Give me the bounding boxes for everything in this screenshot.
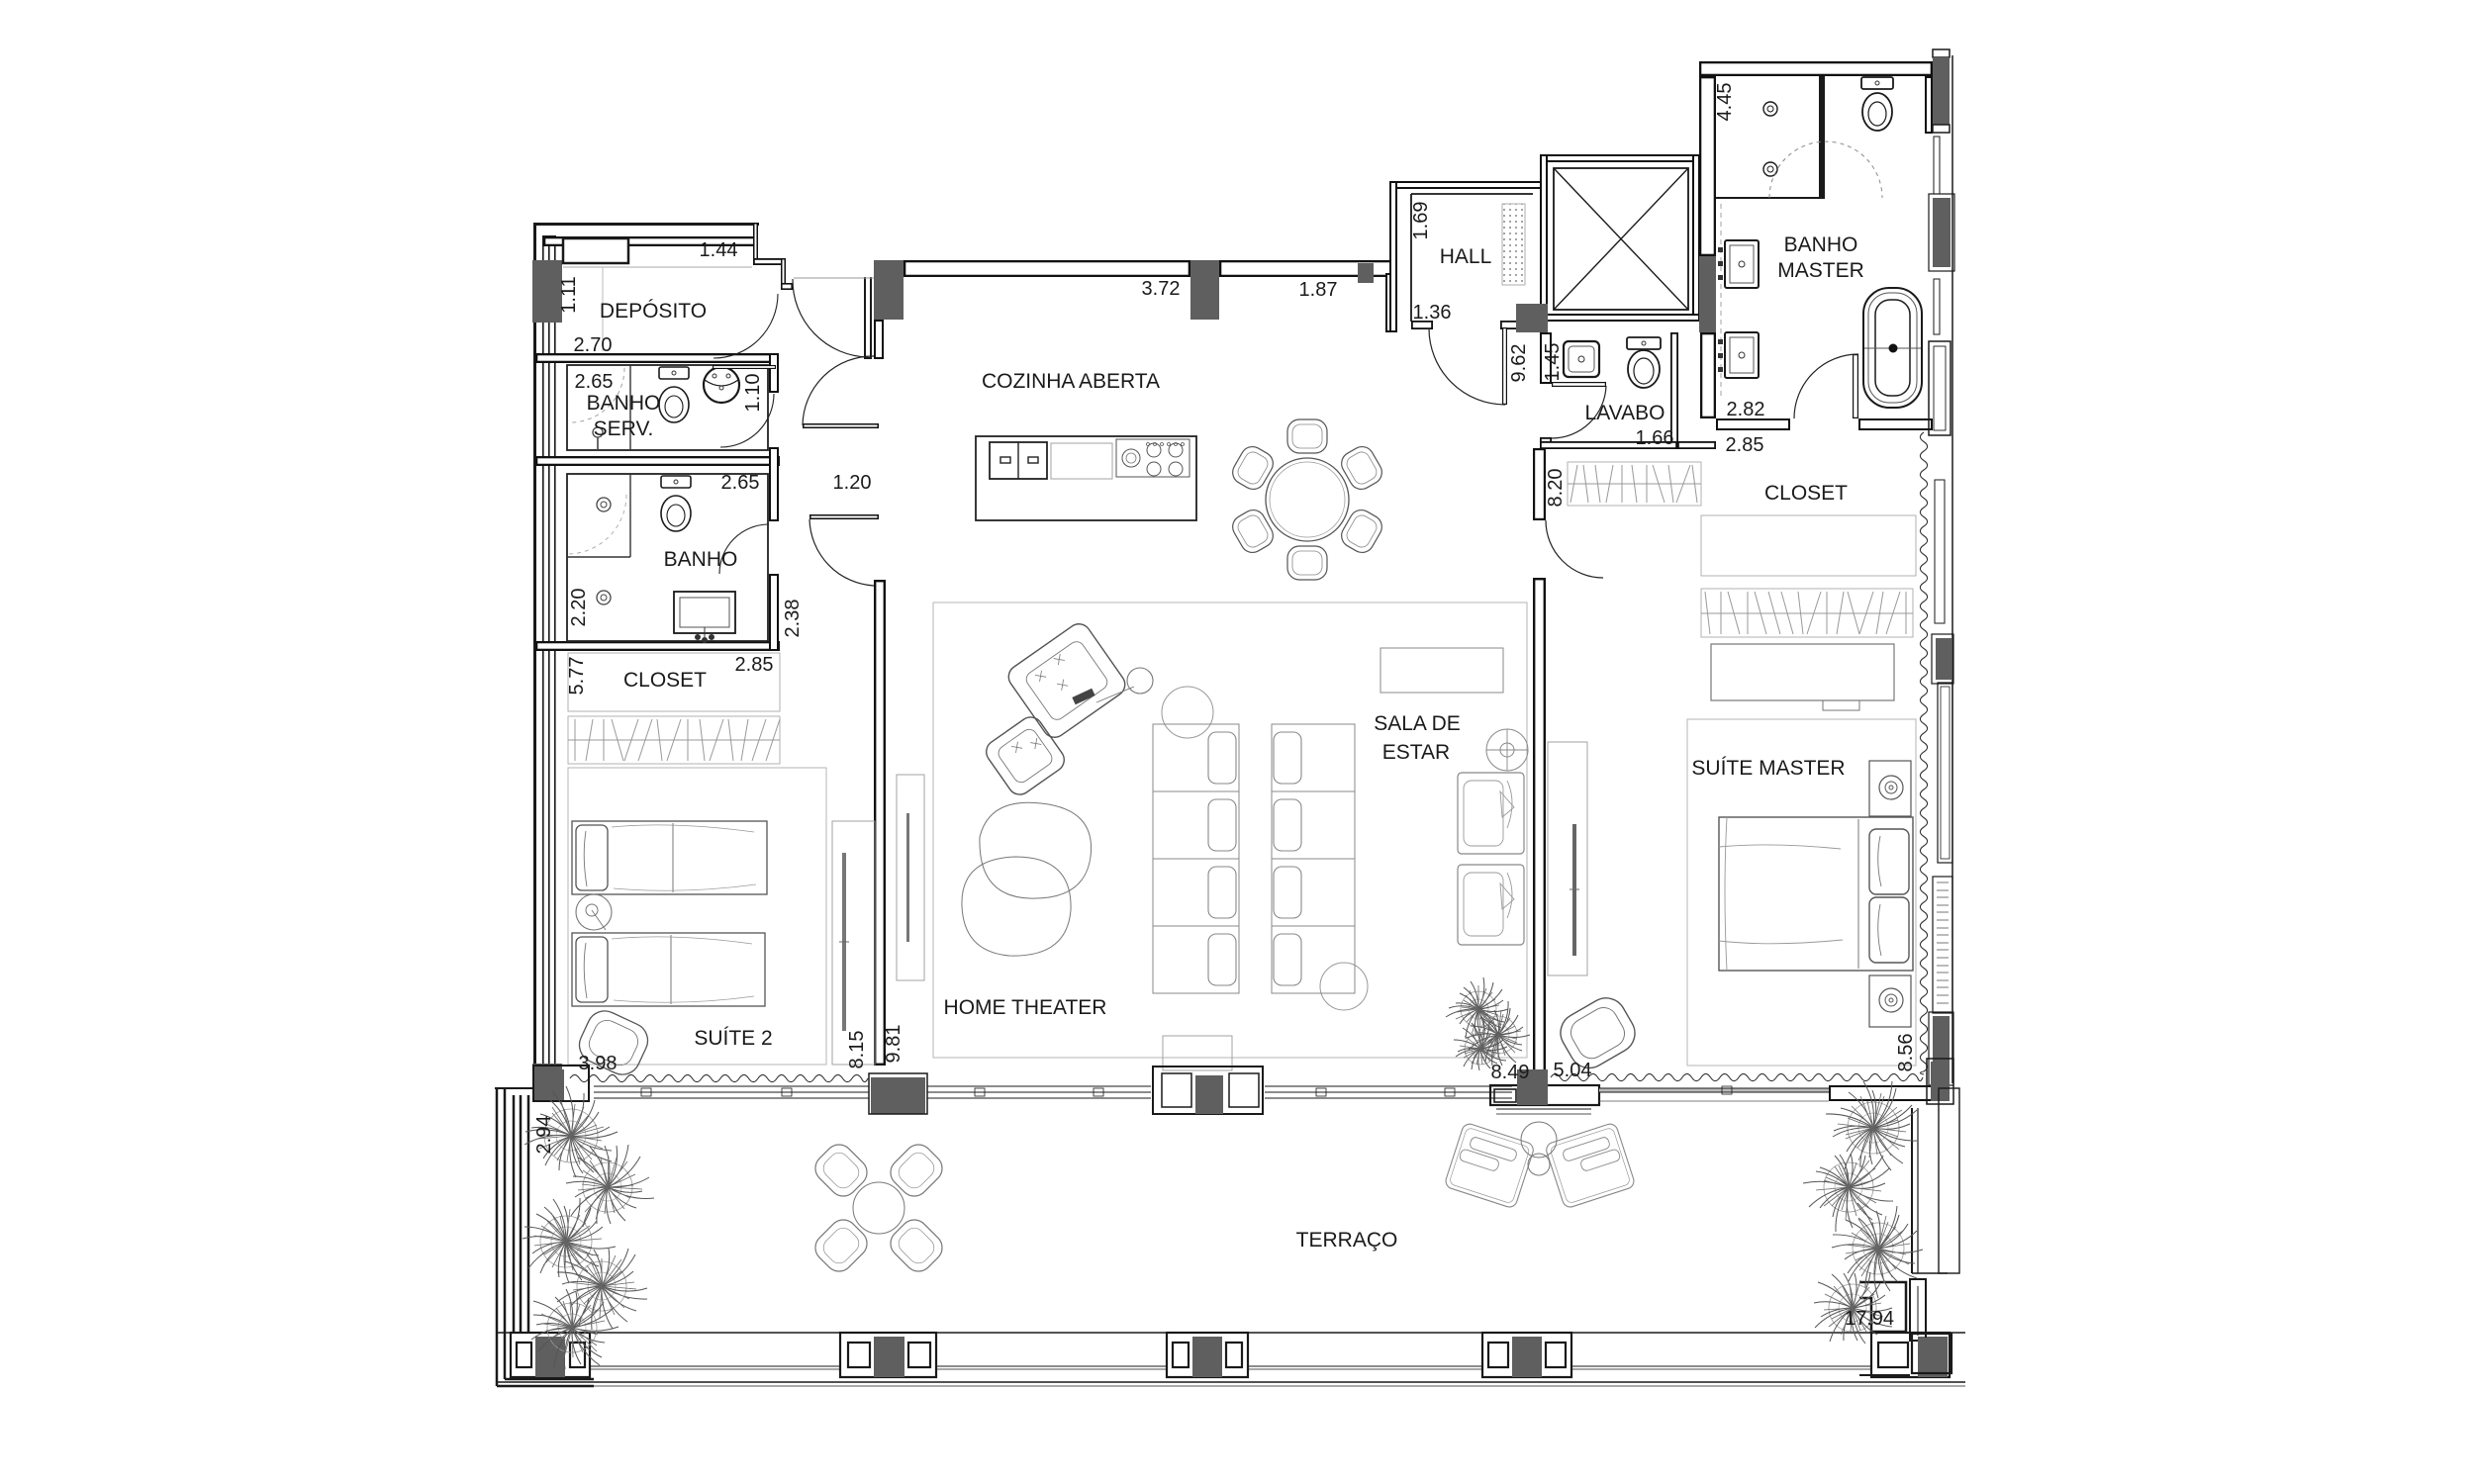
svg-text:1.87: 1.87: [1299, 279, 1338, 301]
svg-text:1.66: 1.66: [1636, 427, 1674, 449]
svg-text:CLOSET: CLOSET: [623, 669, 707, 692]
svg-text:3.98: 3.98: [579, 1053, 618, 1074]
svg-text:HALL: HALL: [1440, 245, 1492, 268]
svg-text:8.56: 8.56: [1895, 1034, 1917, 1072]
svg-text:5.04: 5.04: [1554, 1060, 1592, 1081]
svg-text:5.77: 5.77: [566, 657, 588, 696]
svg-text:1.45: 1.45: [1542, 343, 1564, 382]
svg-text:2.85: 2.85: [1726, 434, 1764, 456]
svg-text:ESTAR: ESTAR: [1382, 741, 1450, 764]
svg-text:SUÍTE 2: SUÍTE 2: [694, 1027, 772, 1050]
svg-text:1.69: 1.69: [1410, 202, 1432, 240]
svg-text:BANHO: BANHO: [1784, 233, 1858, 256]
svg-text:COZINHA ABERTA: COZINHA ABERTA: [982, 370, 1160, 393]
svg-text:SUÍTE MASTER: SUÍTE MASTER: [1691, 757, 1845, 780]
svg-text:17.94: 17.94: [1845, 1308, 1894, 1330]
svg-text:1.20: 1.20: [833, 472, 872, 494]
svg-text:2.65: 2.65: [575, 371, 614, 393]
svg-text:9.62: 9.62: [1508, 344, 1530, 383]
svg-text:2.38: 2.38: [782, 600, 804, 638]
svg-text:LAVABO: LAVABO: [1585, 402, 1665, 424]
svg-text:SALA DE: SALA DE: [1374, 712, 1461, 735]
svg-text:1.11: 1.11: [558, 276, 580, 313]
svg-text:2.94: 2.94: [533, 1116, 555, 1155]
svg-text:TERRAÇO: TERRAÇO: [1296, 1229, 1398, 1252]
svg-text:2.20: 2.20: [568, 589, 590, 627]
svg-text:SERV.: SERV.: [594, 417, 654, 440]
svg-text:9.81: 9.81: [883, 1025, 904, 1064]
svg-text:2.82: 2.82: [1727, 399, 1765, 420]
svg-text:HOME THEATER: HOME THEATER: [944, 996, 1107, 1019]
svg-text:2.85: 2.85: [735, 654, 774, 676]
svg-text:1.36: 1.36: [1413, 302, 1452, 324]
svg-text:CLOSET: CLOSET: [1764, 482, 1848, 505]
svg-text:8.15: 8.15: [846, 1031, 868, 1069]
svg-text:1.44: 1.44: [700, 239, 738, 261]
svg-text:3.72: 3.72: [1142, 278, 1181, 300]
svg-text:BANHO: BANHO: [664, 548, 738, 571]
svg-text:DEPÓSITO: DEPÓSITO: [600, 300, 707, 323]
svg-text:2.65: 2.65: [721, 472, 760, 494]
svg-text:MASTER: MASTER: [1777, 259, 1864, 282]
svg-text:1.10: 1.10: [742, 374, 764, 413]
svg-text:8.49: 8.49: [1491, 1062, 1530, 1083]
svg-text:2.70: 2.70: [574, 334, 613, 356]
svg-text:BANHO: BANHO: [587, 392, 661, 415]
svg-text:4.45: 4.45: [1714, 83, 1736, 122]
svg-text:8.20: 8.20: [1545, 469, 1567, 508]
